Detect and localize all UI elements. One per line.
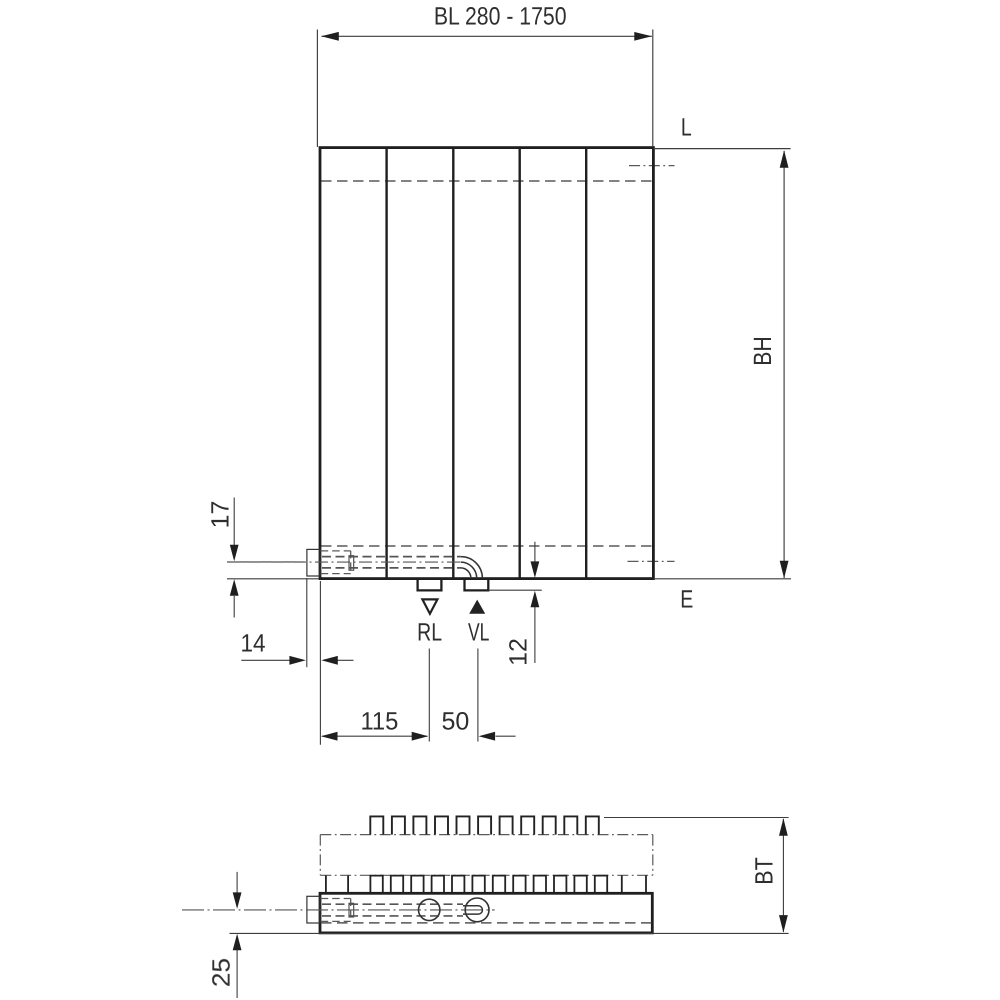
svg-text:RL: RL [417,618,442,646]
svg-text:E: E [680,585,693,613]
svg-text:BT: BT [750,857,778,884]
svg-text:50: 50 [441,708,469,736]
svg-text:VL: VL [468,618,489,646]
svg-text:L: L [681,113,692,141]
svg-text:115: 115 [360,708,398,736]
svg-text:25: 25 [208,958,236,987]
svg-text:17: 17 [206,501,234,529]
svg-text:12: 12 [504,638,532,666]
svg-text:14: 14 [240,630,265,658]
svg-text:BH: BH [749,336,777,366]
svg-text:BL 280 - 1750: BL 280 - 1750 [434,3,567,31]
